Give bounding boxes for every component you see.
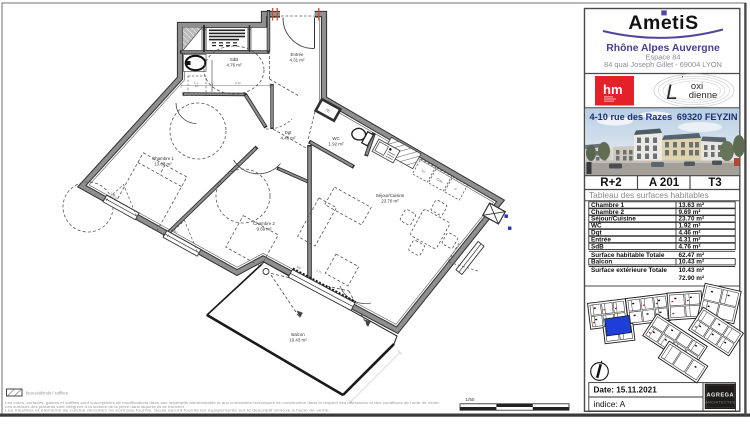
svg-text:indice: A: indice: A (594, 399, 626, 409)
svg-text:Balcon: Balcon (591, 259, 612, 266)
svg-text:10.43 m²: 10.43 m² (679, 259, 705, 266)
svg-text:1.92 m²: 1.92 m² (329, 142, 344, 147)
svg-text:10.43 m²: 10.43 m² (679, 267, 705, 274)
svg-text:84 quai Joseph Gillet - 69004: 84 quai Joseph Gillet - 69004 LYON (604, 60, 722, 69)
svg-text:SdB: SdB (591, 243, 604, 250)
svg-text:2.33: 2.33 (235, 81, 241, 85)
svg-text:faux-plafonds / soffites: faux-plafonds / soffites (26, 391, 68, 396)
svg-text:hm: hm (603, 82, 623, 97)
svg-text:T3: T3 (708, 177, 721, 189)
svg-text:23.70 m²: 23.70 m² (381, 199, 399, 204)
svg-text:Balcon: Balcon (291, 332, 305, 337)
svg-text:4-10 rue des Razes: 4-10 rue des Razes (590, 112, 673, 122)
svg-text:AGREGA: AGREGA (707, 393, 735, 399)
svg-text:4.46 m²: 4.46 m² (281, 136, 296, 141)
svg-text:4.76 m²: 4.76 m² (679, 243, 701, 250)
svg-text:Chambre 2: Chambre 2 (253, 221, 275, 226)
svg-text:Surface extérieure Totale: Surface extérieure Totale (591, 267, 667, 274)
svg-text:72.90 m²: 72.90 m² (679, 275, 705, 282)
svg-text:4.31 m²: 4.31 m² (290, 58, 305, 63)
svg-text:SdB: SdB (230, 57, 238, 62)
svg-text:9.69 m²: 9.69 m² (257, 227, 272, 232)
svg-text:dienne: dienne (689, 90, 718, 101)
svg-text:69320 FEYZIN: 69320 FEYZIN (677, 112, 738, 122)
svg-text:AmetiS: AmetiS (628, 12, 698, 34)
svg-text:L: L (666, 81, 678, 104)
svg-text:A 201: A 201 (649, 177, 680, 189)
svg-text:10.43 m²: 10.43 m² (289, 338, 307, 343)
svg-text:1/50: 1/50 (466, 397, 475, 402)
svg-text:ARCHITECTES: ARCHITECTES (705, 401, 735, 405)
svg-text:Chambre 1: Chambre 1 (152, 156, 174, 161)
svg-text:’: ’ (681, 75, 683, 84)
svg-text:Les meubles et éléments de cui: Les meubles et éléments de cuisine dessi… (5, 409, 330, 413)
svg-text:R+2: R+2 (600, 177, 621, 189)
svg-text:1.1: 1.1 (194, 81, 198, 85)
svg-text:4.76 m²: 4.76 m² (227, 63, 242, 68)
svg-text:Dgt: Dgt (285, 130, 293, 135)
svg-text:Entrée: Entrée (291, 52, 304, 57)
svg-text:Séjour/Cuisine: Séjour/Cuisine (376, 193, 405, 198)
svg-text:WC: WC (332, 136, 339, 141)
svg-text:Tableau des surfaces habitable: Tableau des surfaces habitables (589, 190, 709, 200)
svg-text:Date: 15.11.2021: Date: 15.11.2021 (594, 386, 658, 395)
